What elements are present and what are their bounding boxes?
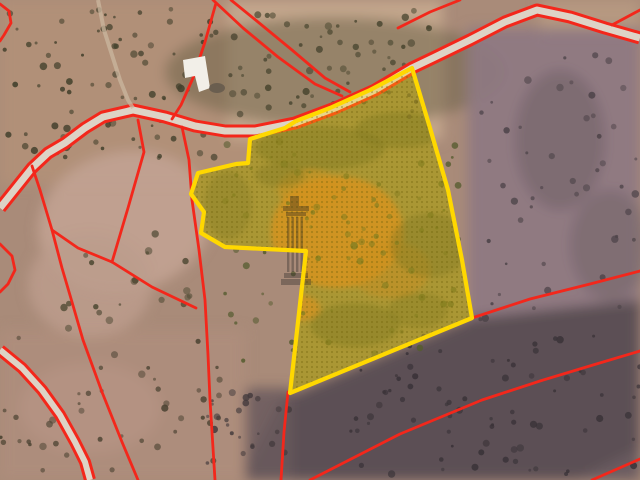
tree-dot: [132, 33, 137, 38]
tree-dot: [46, 53, 51, 58]
tree-dot: [320, 35, 323, 38]
tree-dot: [151, 124, 154, 127]
tree-dot: [173, 430, 177, 434]
tree-dot: [519, 126, 522, 129]
tree-dot: [63, 125, 70, 132]
tree-dot: [163, 97, 166, 100]
tree-dot: [336, 24, 340, 28]
tree-dot: [121, 96, 125, 100]
tree-dot: [462, 396, 467, 401]
tree-dot: [511, 363, 516, 368]
tree-dot: [138, 10, 143, 15]
tree-dot: [556, 336, 563, 343]
tree-dot: [237, 111, 244, 118]
tree-dot: [276, 406, 282, 412]
tree-dot: [146, 251, 149, 254]
tree-dot: [503, 457, 509, 463]
tree-dot: [106, 317, 114, 325]
tree-dot: [197, 388, 202, 393]
tree-dot: [110, 467, 115, 472]
tree-dot: [63, 155, 68, 160]
tree-dot: [500, 183, 506, 189]
tree-dot: [487, 239, 491, 243]
tree-dot: [502, 375, 509, 382]
tree-dot: [229, 389, 236, 396]
tree-dot: [353, 44, 359, 50]
tree-dot: [104, 13, 107, 16]
tree-dot: [451, 156, 454, 159]
tree-dot: [436, 386, 441, 391]
tree-dot: [388, 470, 395, 477]
tree-dot: [60, 87, 65, 92]
tree-dot: [131, 137, 135, 141]
tree-dot: [65, 325, 72, 332]
tree-dot: [387, 56, 390, 59]
tree-dot: [12, 82, 18, 88]
tree-dot: [388, 389, 391, 392]
tree-dot: [383, 390, 388, 395]
tree-dot: [213, 30, 218, 35]
tree-dot: [284, 21, 290, 27]
tree-dot: [402, 14, 409, 21]
tree-dot: [214, 413, 221, 420]
tree-dot: [408, 39, 416, 47]
tree-dot: [513, 459, 518, 464]
tree-dot: [408, 384, 414, 390]
tree-dot: [592, 335, 595, 338]
tree-dot: [542, 262, 546, 266]
tree-dot: [632, 238, 636, 242]
map-viewport[interactable]: [0, 0, 640, 480]
tree-dot: [511, 420, 516, 425]
tree-dot: [130, 50, 137, 57]
tree-dot: [349, 430, 352, 433]
tree-dot: [592, 52, 598, 58]
tree-dot: [89, 260, 94, 265]
tree-dot: [532, 341, 537, 346]
tree-dot: [197, 150, 203, 156]
tree-dot: [226, 423, 229, 426]
tree-dot: [490, 302, 493, 305]
tree-dot: [138, 51, 144, 57]
tree-dot: [241, 451, 246, 456]
tree-dot: [439, 457, 444, 462]
tree-dot: [583, 184, 590, 191]
tree-dot: [505, 263, 508, 266]
tree-dot: [152, 230, 159, 237]
tree-dot: [533, 348, 539, 354]
tree-dot: [142, 60, 148, 66]
tree-dot: [254, 11, 261, 18]
tree-dot: [134, 97, 138, 101]
tree-dot: [78, 402, 81, 405]
tree-dot: [118, 38, 122, 42]
tree-dot: [154, 444, 161, 451]
tree-dot: [171, 136, 177, 142]
tree-dot: [634, 158, 637, 161]
tree-dot: [511, 198, 518, 205]
tree-dot: [518, 217, 524, 223]
tree-dot: [510, 410, 515, 415]
tree-dot: [396, 377, 401, 382]
tree-dot: [583, 428, 588, 433]
tree-dot: [40, 63, 48, 71]
tree-dot: [28, 443, 32, 447]
tree-dot: [253, 317, 259, 323]
tree-dot: [241, 89, 248, 96]
tree-dot: [580, 370, 586, 376]
tree-dot: [153, 378, 156, 381]
tree-dot: [138, 371, 145, 378]
tree-dot: [173, 53, 176, 56]
tree-dot: [67, 90, 72, 95]
tree-dot: [39, 443, 46, 450]
tree-dot: [155, 134, 161, 140]
tree-dot: [54, 62, 61, 69]
tree-dot: [355, 52, 361, 58]
tree-dot: [412, 373, 418, 379]
tree-dot: [5, 132, 11, 138]
tree-dot: [487, 159, 491, 163]
tree-dot: [354, 416, 359, 421]
tree-dot: [138, 146, 141, 149]
tree-dot: [532, 306, 536, 310]
tree-dot: [417, 345, 424, 352]
tree-dot: [369, 40, 375, 46]
tree-dot: [597, 134, 602, 139]
tree-dot: [632, 396, 636, 400]
tree-dot: [540, 186, 543, 189]
tree-dot: [231, 33, 238, 40]
tree-dot: [79, 408, 85, 414]
tree-dot: [255, 396, 261, 402]
tree-dot: [93, 304, 98, 309]
tree-dot: [625, 209, 632, 216]
tree-dot: [511, 446, 518, 453]
tree-dot: [247, 393, 253, 399]
tree-dot: [299, 43, 303, 47]
tree-dot: [46, 421, 53, 428]
tree-dot: [289, 101, 293, 105]
tree-dot: [489, 417, 492, 420]
tree-dot: [156, 386, 161, 391]
tree-dot: [97, 30, 100, 33]
tree-dot: [355, 429, 360, 434]
tree-dot: [13, 415, 18, 420]
tree-dot: [507, 359, 510, 362]
tree-dot: [595, 168, 599, 172]
tree-dot: [625, 412, 632, 419]
tree-dot: [354, 20, 357, 23]
tree-dot: [570, 178, 576, 184]
tree-dot: [263, 58, 267, 62]
tree-dot: [529, 373, 535, 379]
tree-dot: [382, 67, 386, 71]
tree-dot: [491, 359, 495, 363]
tree-dot: [503, 127, 509, 133]
tree-dot: [360, 369, 363, 372]
tree-dot: [400, 397, 405, 402]
tree-dot: [182, 258, 188, 264]
tree-dot: [54, 41, 57, 44]
tree-dot: [303, 88, 310, 95]
tree-dot: [600, 393, 604, 397]
tree-dot: [17, 336, 21, 340]
tree-dot: [367, 413, 374, 420]
building-shadow: [209, 83, 225, 93]
tree-dot: [159, 297, 165, 303]
tree-dot: [59, 19, 64, 24]
tree-dot: [3, 48, 7, 52]
tree-dot: [146, 366, 150, 370]
tree-dot: [340, 65, 347, 72]
tree-dot: [206, 461, 210, 465]
tree-dot: [325, 22, 332, 29]
tree-dot: [563, 56, 566, 59]
satellite-map: [0, 0, 640, 480]
tree-dot: [228, 312, 234, 318]
tree-dot: [167, 19, 173, 25]
tree-dot: [270, 12, 276, 18]
tree-dot: [234, 321, 237, 324]
tree-dot: [525, 151, 528, 154]
tree-dot: [99, 366, 103, 370]
tree-dot: [161, 405, 168, 412]
tree-dot: [90, 83, 94, 87]
tree-dot: [254, 93, 260, 99]
tree-dot: [411, 8, 417, 14]
tree-dot: [438, 349, 442, 353]
tree-dot: [401, 45, 405, 49]
tree-dot: [223, 292, 227, 296]
tree-dot: [390, 60, 396, 66]
tree-dot: [411, 418, 416, 423]
tree-dot: [483, 440, 490, 447]
tree-dot: [588, 92, 595, 99]
tree-dot: [93, 139, 98, 144]
tree-dot: [337, 40, 343, 46]
tree-dot: [455, 182, 462, 189]
tree-dot: [119, 303, 122, 306]
tree-dot: [40, 468, 45, 473]
tree-dot: [238, 436, 241, 439]
tree-dot: [37, 84, 40, 87]
tree-dot: [327, 29, 333, 35]
tree-dot: [22, 143, 29, 150]
tree-dot: [615, 235, 618, 238]
tree-dot: [35, 42, 38, 45]
tree-dot: [591, 113, 596, 118]
tree-dot: [447, 430, 451, 434]
tree-dot: [269, 441, 275, 447]
tree-dot: [113, 16, 116, 19]
tree-dot: [620, 185, 624, 189]
tree-dot: [148, 42, 154, 48]
tree-dot: [16, 28, 19, 31]
tree-dot: [367, 422, 370, 425]
tree-dot: [90, 9, 95, 14]
tree-dot: [536, 423, 543, 430]
tree-dot: [346, 82, 349, 85]
tree-dot: [81, 54, 84, 57]
tree-dot: [445, 403, 449, 407]
tree-dot: [441, 468, 444, 471]
tree-dot: [304, 24, 309, 29]
tree-dot: [478, 317, 482, 321]
tree-dot: [230, 431, 234, 435]
tree-dot: [479, 110, 483, 114]
tree-dot: [553, 389, 556, 392]
tree-dot: [452, 142, 459, 149]
tree-dot: [267, 54, 272, 59]
tree-dot: [53, 441, 59, 447]
tree-dot: [243, 262, 250, 269]
tree-dot: [574, 192, 579, 197]
tree-dot: [268, 301, 273, 306]
tree-dot: [238, 66, 243, 71]
tree-dot: [549, 153, 555, 159]
tree-dot: [376, 402, 383, 409]
tree-dot: [310, 94, 314, 98]
tree-dot: [359, 463, 364, 468]
tree-dot: [236, 408, 242, 414]
tree-dot: [1, 440, 6, 445]
tree-dot: [263, 251, 267, 255]
tree-dot: [569, 80, 573, 84]
tree-dot: [296, 95, 300, 99]
tree-dot: [200, 396, 206, 402]
tree-dot: [241, 74, 244, 77]
tree-dot: [224, 141, 231, 148]
tree-dot: [600, 160, 606, 166]
tree-dot: [632, 438, 635, 441]
tree-dot: [406, 352, 409, 355]
tree-dot: [169, 7, 174, 12]
tree-dot: [157, 156, 161, 160]
tree-dot: [531, 196, 535, 200]
tree-dot: [556, 84, 563, 91]
tree-dot: [176, 83, 182, 89]
tree-dot: [250, 443, 254, 447]
tree-dot: [105, 82, 111, 88]
tree-dot: [98, 437, 103, 442]
tree-dot: [372, 50, 376, 54]
tree-dot: [275, 430, 280, 435]
tree-dot: [346, 71, 350, 75]
tree-dot: [524, 76, 532, 84]
tree-dot: [199, 33, 203, 37]
tree-dot: [228, 73, 232, 77]
tree-dot: [201, 416, 205, 420]
tree-dot: [149, 91, 156, 98]
tree-dot: [472, 464, 479, 471]
tree-dot: [31, 147, 38, 154]
tree-dot: [266, 104, 272, 110]
tree-dot: [605, 57, 612, 64]
tree-dot: [261, 293, 264, 296]
tree-dot: [632, 190, 640, 198]
tree-dot: [111, 351, 118, 358]
tree-dot: [51, 122, 58, 129]
tree-dot: [583, 115, 589, 121]
tree-dot: [388, 40, 394, 46]
tree-dot: [3, 409, 7, 413]
tree-dot: [617, 305, 621, 309]
tree-dot: [257, 432, 260, 435]
tree-dot: [24, 132, 28, 136]
tree-dot: [327, 66, 332, 71]
tree-dot: [217, 377, 223, 383]
tree-dot: [266, 68, 272, 74]
tree-dot: [490, 424, 495, 429]
tree-dot: [517, 444, 524, 451]
tree-dot: [316, 46, 323, 53]
tree-dot: [77, 392, 80, 395]
tree-dot: [395, 374, 398, 377]
tree-dot: [112, 43, 118, 49]
tree-dot: [206, 415, 209, 418]
tree-dot: [66, 78, 73, 85]
tree-dot: [242, 400, 249, 407]
tree-dot: [69, 110, 74, 115]
tree-dot: [64, 452, 69, 457]
tree-dot: [83, 253, 88, 258]
tree-dot: [265, 13, 270, 18]
tree-dot: [17, 439, 21, 443]
tree-dot: [96, 310, 102, 316]
tree-dot: [564, 472, 568, 476]
tree-dot: [478, 449, 484, 455]
tree-dot: [446, 161, 452, 167]
tree-dot: [301, 103, 306, 108]
tree-dot: [498, 293, 501, 296]
tree-dot: [211, 154, 218, 161]
tree-dot: [533, 466, 538, 471]
tree-dot: [490, 101, 493, 104]
tree-dot: [611, 124, 617, 130]
tree-dot: [209, 34, 213, 38]
tree-dot: [229, 90, 236, 97]
tree-dot: [224, 418, 228, 422]
tree-dot: [528, 469, 531, 472]
tree-dot: [620, 85, 626, 91]
tree-dot: [216, 393, 222, 399]
tree-dot: [530, 205, 533, 208]
tree-dot: [178, 415, 184, 421]
tree-dot: [86, 391, 91, 396]
tree-dot: [215, 366, 218, 369]
tree-dot: [564, 375, 570, 381]
tree-dot: [183, 287, 190, 294]
tree-dot: [265, 85, 272, 92]
tree-dot: [241, 359, 245, 363]
tree-dot: [377, 21, 383, 27]
tree-dot: [139, 439, 144, 444]
tree-dot: [26, 42, 32, 48]
tree-dot: [596, 415, 603, 422]
tree-dot: [426, 25, 430, 29]
tree-dot: [407, 364, 413, 370]
tree-dot: [196, 339, 201, 344]
tree-dot: [101, 147, 105, 151]
tree-dot: [451, 445, 454, 448]
tree-dot: [106, 24, 112, 30]
tree-dot: [184, 294, 190, 300]
